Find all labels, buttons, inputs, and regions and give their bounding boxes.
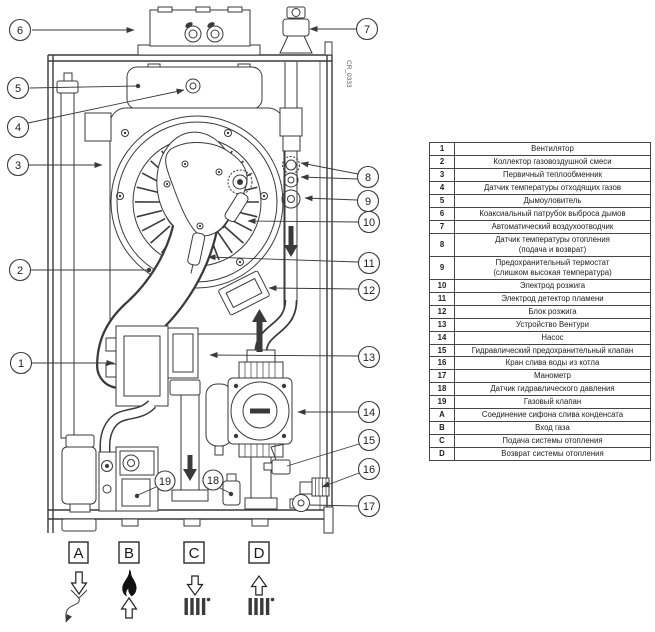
legend-row: 14Насос: [430, 331, 651, 344]
legend-row: 6Коаксиальный патрубок выброса дымов: [430, 207, 651, 220]
callout-2: 2: [10, 260, 31, 281]
legend-row-num: 8: [430, 233, 455, 256]
legend-row: AСоединение сифона слива конденсата: [430, 409, 651, 422]
legend-row-desc: Датчик температуры отопления (подача и в…: [455, 233, 651, 256]
callout-4: 4: [8, 117, 29, 138]
svg-text:19: 19: [159, 476, 171, 488]
legend-row-num: 7: [430, 220, 455, 233]
boiler-diagram: 1 2 3 4 5 6 7 8 9 10 11 12 13 14 15 16 1…: [0, 0, 420, 632]
legend-row: 2Коллектор газовоздушной смеси: [430, 155, 651, 168]
legend-row-desc: Коаксиальный патрубок выброса дымов: [455, 207, 651, 220]
legend-row: 12Блок розжига: [430, 305, 651, 318]
legend-row-desc: Вентилятор: [455, 143, 651, 156]
legend-row-num: 6: [430, 207, 455, 220]
legend-row-num: 12: [430, 305, 455, 318]
svg-text:6: 6: [17, 25, 23, 37]
connection-c-label: C: [184, 542, 204, 563]
svg-text:7: 7: [364, 24, 370, 36]
legend-row: 17Манометр: [430, 370, 651, 383]
heating-supply-pipe: [172, 395, 208, 501]
svg-text:10: 10: [363, 217, 375, 229]
gas-valve: [99, 447, 158, 511]
callout-5: 5: [8, 78, 29, 99]
legend-row: CПодача системы отопления: [430, 435, 651, 448]
legend-row-desc: Датчик гидравлического давления: [455, 383, 651, 396]
callout-16: 16: [359, 459, 380, 480]
legend-row-desc: Подача системы отопления: [455, 435, 651, 448]
legend-row: 7Автоматический воздухоотводчик: [430, 220, 651, 233]
legend-row: 4Датчик температуры отходящих газов: [430, 181, 651, 194]
heating-return-symbol: [249, 576, 275, 615]
svg-text:17: 17: [363, 501, 375, 513]
svg-text:3: 3: [15, 160, 21, 172]
callout-6: 6: [10, 20, 31, 41]
coaxial-flue-outlet: [138, 7, 260, 55]
legend-row: 11Электрод детектор пламени: [430, 292, 651, 305]
callout-3: 3: [8, 155, 29, 176]
legend-row-num: 17: [430, 370, 455, 383]
svg-text:A: A: [73, 545, 83, 562]
legend-row: 16Кран слива воды из котла: [430, 357, 651, 370]
drain-cock: [300, 478, 329, 496]
connection-a-label: A: [69, 542, 88, 563]
condensate-siphon: [62, 435, 96, 512]
svg-text:5: 5: [15, 83, 21, 95]
legend-row-num: B: [430, 422, 455, 435]
gas-pipe-elbow: [105, 404, 152, 452]
venturi: [168, 328, 200, 395]
legend-row-num: 4: [430, 181, 455, 194]
legend-table: 1Вентилятор2Коллектор газовоздушной смес…: [429, 142, 651, 461]
legend-row: 8Датчик температуры отопления (подача и …: [430, 233, 651, 256]
legend-row-num: 15: [430, 344, 455, 357]
legend-row-num: 19: [430, 396, 455, 409]
legend-row: 10Электрод розжига: [430, 279, 651, 292]
callout-11: 11: [359, 253, 380, 274]
callout-13: 13: [359, 347, 380, 368]
legend-row-desc: Коллектор газовоздушной смеси: [455, 155, 651, 168]
legend-row: BВход газа: [430, 422, 651, 435]
legend-row: 18Датчик гидравлического давления: [430, 383, 651, 396]
heating-supply-symbol: [185, 576, 211, 615]
svg-text:13: 13: [363, 352, 375, 364]
callout-12: 12: [359, 280, 380, 301]
legend-row-num: 16: [430, 357, 455, 370]
boiler-exploded-view-page: 1 2 3 4 5 6 7 8 9 10 11 12 13 14 15 16 1…: [0, 0, 655, 632]
svg-text:12: 12: [363, 285, 375, 297]
svg-text:18: 18: [207, 475, 219, 487]
left-condensate-pipe: [57, 73, 78, 438]
legend-row: 9Предохранительный термостат (слишком вы…: [430, 256, 651, 279]
condensate-drain-symbol: [66, 572, 87, 622]
legend-row-num: 13: [430, 318, 455, 331]
legend-row-num: 1: [430, 143, 455, 156]
legend-row: 3Первичный теплообменник: [430, 168, 651, 181]
svg-text:D: D: [254, 545, 265, 562]
legend-row-num: 2: [430, 155, 455, 168]
legend-row-desc: Гидравлический предохранительный клапан: [455, 344, 651, 357]
legend-row-desc: Электрод розжига: [455, 279, 651, 292]
svg-text:15: 15: [363, 435, 375, 447]
legend-row: 1Вентилятор: [430, 143, 651, 156]
legend-row: 13Устройство Вентури: [430, 318, 651, 331]
callout-15: 15: [359, 430, 380, 451]
svg-text:C: C: [189, 545, 200, 562]
side-bracket: [85, 113, 111, 141]
svg-text:11: 11: [363, 258, 374, 270]
legend-row-desc: Вход газа: [455, 422, 651, 435]
legend-row-desc: Насос: [455, 331, 651, 344]
legend-row-desc: Кран слива воды из котла: [455, 357, 651, 370]
svg-text:2: 2: [17, 265, 23, 277]
legend-row: 5Дымоуловитель: [430, 194, 651, 207]
smoke-collector-dome: [127, 64, 262, 109]
legend-row: 15Гидравлический предохранительный клапа…: [430, 344, 651, 357]
svg-text:1: 1: [18, 358, 24, 370]
callout-8: 8: [358, 167, 379, 188]
legend-row-num: A: [430, 409, 455, 422]
legend-row-desc: Автоматический воздухоотводчик: [455, 220, 651, 233]
legend-row-num: 9: [430, 256, 455, 279]
callout-1: 1: [11, 353, 32, 374]
legend-row-num: 11: [430, 292, 455, 305]
legend-row-desc: Возврат системы отопления: [455, 448, 651, 461]
legend-row-desc: Газовый клапан: [455, 396, 651, 409]
callout-18: 18: [203, 470, 223, 490]
legend-row-desc: Манометр: [455, 370, 651, 383]
legend-row-num: 3: [430, 168, 455, 181]
legend-row: DВозврат системы отопления: [430, 448, 651, 461]
callout-7: 7: [357, 19, 378, 40]
manometer: [290, 495, 310, 512]
legend-row-desc: Электрод детектор пламени: [455, 292, 651, 305]
air-vent: [280, 7, 312, 53]
svg-text:8: 8: [365, 172, 371, 184]
legend-row-num: 5: [430, 194, 455, 207]
legend-row-desc: Блок розжига: [455, 305, 651, 318]
pressure-sensor: [223, 474, 240, 505]
svg-text:16: 16: [363, 464, 375, 476]
legend-row: 19Газовый клапан: [430, 396, 651, 409]
legend-row-num: C: [430, 435, 455, 448]
svg-text:4: 4: [15, 122, 21, 134]
svg-text:9: 9: [365, 196, 371, 208]
gas-inlet-symbol: [122, 570, 137, 619]
legend-row-desc: Соединение сифона слива конденсата: [455, 409, 651, 422]
connection-d-label: D: [249, 542, 269, 563]
legend-row-num: 18: [430, 383, 455, 396]
legend-row-desc: Датчик температуры отходящих газов: [455, 181, 651, 194]
svg-text:B: B: [124, 545, 134, 562]
legend-row-num: D: [430, 448, 455, 461]
callout-14: 14: [359, 402, 380, 423]
callout-10: 10: [359, 212, 380, 233]
legend-row-desc: Предохранительный термостат (слишком выс…: [455, 256, 651, 279]
legend-row-num: 14: [430, 331, 455, 344]
drawing-code-label: CR_0333: [345, 60, 352, 88]
fan-assembly: [106, 326, 168, 406]
legend-row-desc: Устройство Вентури: [455, 318, 651, 331]
connection-b-label: B: [119, 542, 139, 563]
callout-9: 9: [358, 191, 379, 212]
legend-row-num: 10: [430, 279, 455, 292]
legend-row-desc: Дымоуловитель: [455, 194, 651, 207]
svg-text:14: 14: [363, 407, 375, 419]
callout-19: 19: [155, 471, 175, 491]
callout-17: 17: [359, 496, 380, 517]
legend-row-desc: Первичный теплообменник: [455, 168, 651, 181]
